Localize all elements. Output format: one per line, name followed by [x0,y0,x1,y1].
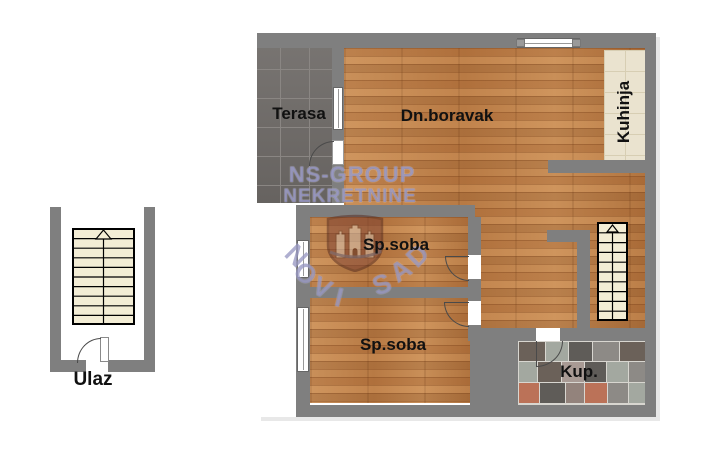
stairhall-left-wall [577,230,590,332]
stairhall-stub-wall [547,230,579,242]
bathroom-label: Kup. [549,362,609,382]
terrace-label: Terasa [260,104,338,124]
living-room-window-cap-right [572,39,581,47]
outer-top-wall [257,33,656,48]
entrance-door-arc [77,338,101,363]
entrance-label: Ulaz [58,369,128,391]
watermark-line1: NS-GROUP [262,162,442,188]
watermark-line2: NEKRETNINE [260,186,440,208]
bedroom2-window [297,307,309,372]
outer-right-wall [645,33,656,417]
living-room-window-cap-left [516,39,525,47]
stairwell-right-wall [144,207,155,362]
entrance-door-leaf [100,337,109,362]
bathroom-door-gap [536,328,560,341]
living-room-window [517,38,580,48]
entrance-staircase [72,228,135,325]
bedroom2-label: Sp.soba [349,335,437,355]
stairwell-left-wall [50,207,61,362]
bedroom2-door-gap [468,301,481,325]
bedrooms-left-wall [296,205,310,405]
outer-bottom-wall [296,405,656,417]
living-room-label: Dn.boravak [385,106,509,126]
kitchen-bottom-wall [548,160,656,173]
bathroom-left-wall-block [470,341,518,405]
floor-plan: Ulaz [0,0,706,468]
hall-bottom-wall [468,328,656,341]
bedroom1-door-gap [468,255,481,279]
bedroom1-label: Sp.soba [352,235,440,255]
internal-staircase [597,222,628,321]
